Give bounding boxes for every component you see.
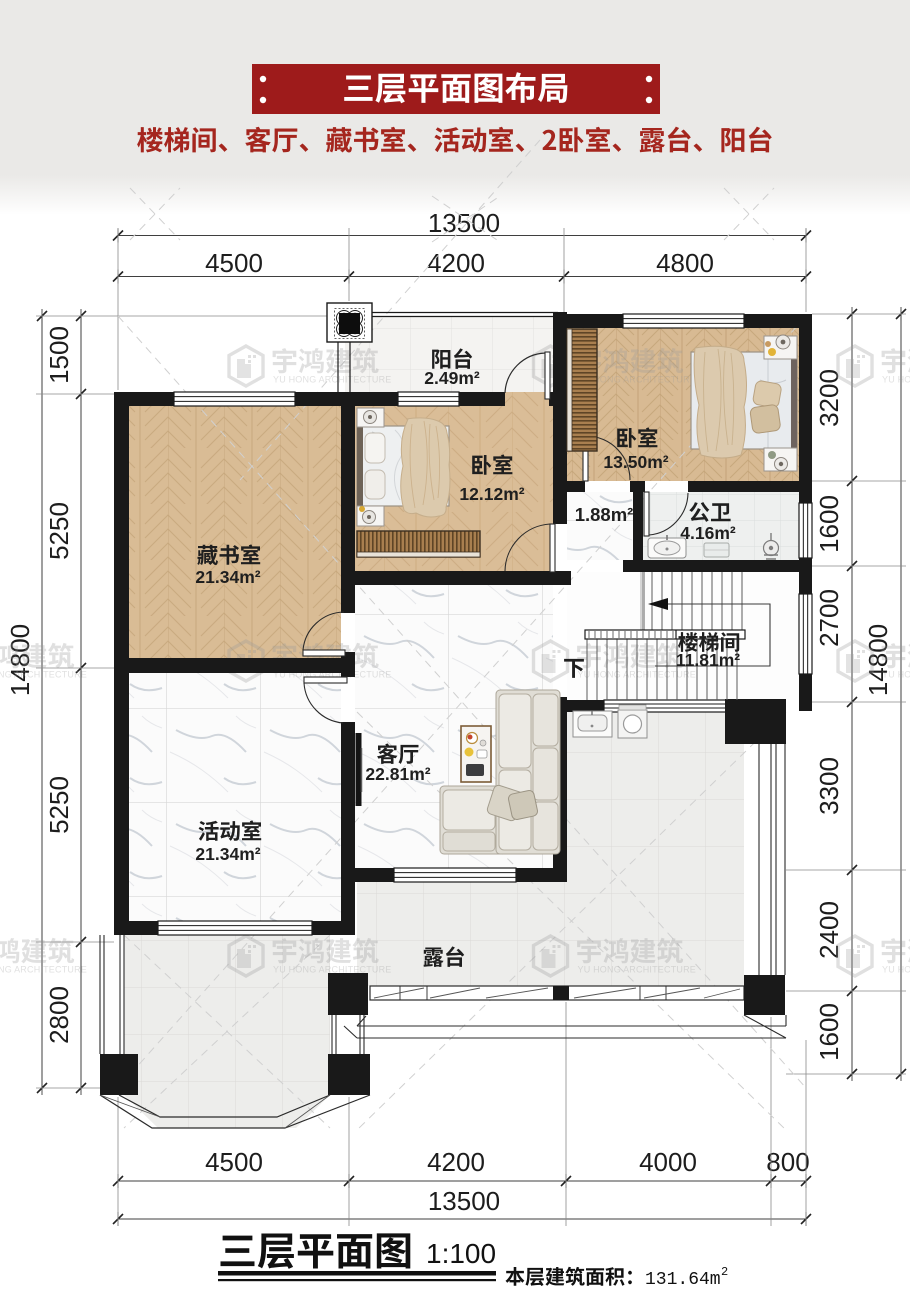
svg-text:4800: 4800	[656, 248, 714, 278]
svg-text:131.64m: 131.64m	[645, 1270, 721, 1290]
svg-text:21.34m²: 21.34m²	[195, 844, 260, 864]
svg-text:13500: 13500	[428, 1186, 500, 1216]
svg-text:YU HONG ARCHITECTURE: YU HONG ARCHITECTURE	[882, 670, 910, 680]
svg-text:3300: 3300	[814, 757, 844, 815]
svg-text:4.16m²: 4.16m²	[680, 523, 736, 543]
svg-text:2: 2	[721, 1265, 728, 1279]
svg-text:1600: 1600	[814, 1003, 844, 1061]
svg-text:YU HONG ARCHITECTURE: YU HONG ARCHITECTURE	[882, 375, 910, 385]
svg-text:21.34m²: 21.34m²	[195, 567, 260, 587]
svg-text:YU HONG ARCHITECTURE: YU HONG ARCHITECTURE	[0, 670, 87, 680]
svg-text:YU HONG ARCHITECTURE: YU HONG ARCHITECTURE	[0, 965, 87, 975]
svg-text:800: 800	[766, 1147, 809, 1177]
svg-text:5250: 5250	[44, 776, 74, 834]
svg-text:22.81m²: 22.81m²	[365, 764, 430, 784]
svg-text:11.81m²: 11.81m²	[676, 650, 740, 670]
svg-text:1600: 1600	[814, 495, 844, 553]
svg-text:2800: 2800	[44, 986, 74, 1044]
svg-text:4500: 4500	[205, 1147, 263, 1177]
svg-text:YU HONG ARCHITECTURE: YU HONG ARCHITECTURE	[882, 965, 910, 975]
svg-text:13.50m²: 13.50m²	[603, 452, 668, 472]
svg-text:4200: 4200	[427, 248, 485, 278]
svg-text:4500: 4500	[205, 248, 263, 278]
svg-text:1500: 1500	[44, 326, 74, 384]
svg-text:2.49m²: 2.49m²	[424, 368, 480, 388]
svg-text:YU HONG ARCHITECTURE: YU HONG ARCHITECTURE	[578, 965, 697, 975]
svg-text:13500: 13500	[428, 208, 500, 238]
svg-text:4000: 4000	[639, 1147, 697, 1177]
svg-text:4200: 4200	[427, 1147, 485, 1177]
svg-text:5250: 5250	[44, 502, 74, 560]
svg-text:1:100: 1:100	[426, 1238, 496, 1269]
svg-text:2700: 2700	[814, 589, 844, 647]
svg-text:1.88m²: 1.88m²	[575, 504, 634, 525]
svg-text:12.12m²: 12.12m²	[459, 484, 524, 504]
svg-text:YU HONG ARCHITECTURE: YU HONG ARCHITECTURE	[273, 375, 392, 385]
